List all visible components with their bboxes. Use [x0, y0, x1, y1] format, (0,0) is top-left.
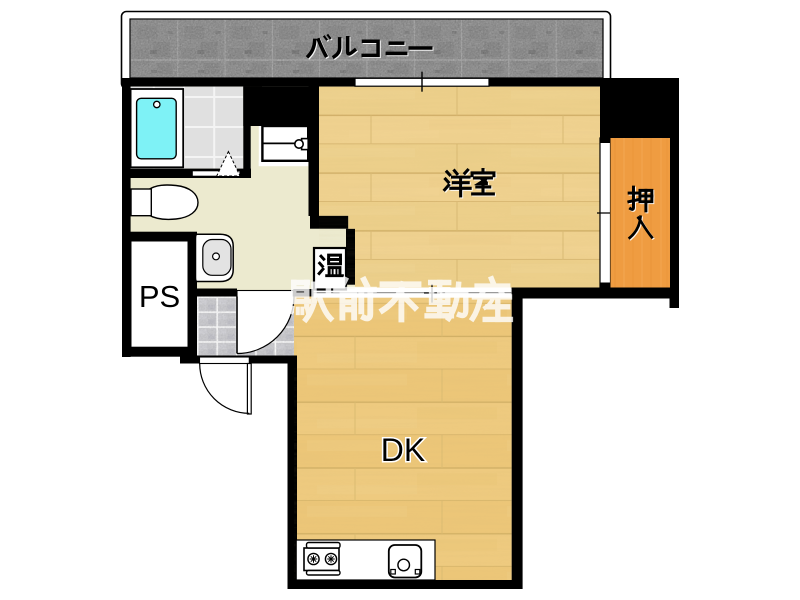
svg-text:DK: DK	[381, 432, 425, 468]
svg-text:PS: PS	[139, 279, 180, 314]
